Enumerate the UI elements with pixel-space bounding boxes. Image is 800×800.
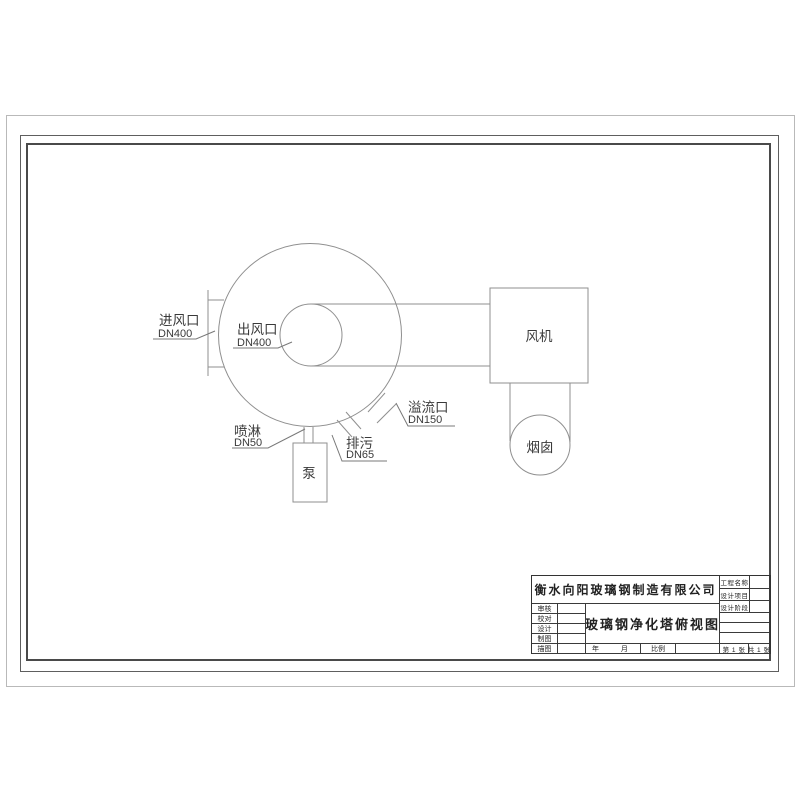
pump-label: 泵 <box>302 466 316 481</box>
design-stage-value <box>750 601 770 613</box>
sign-label-jiaodui: 校对 <box>532 614 558 624</box>
project-name-label: 工程名称 <box>720 576 750 589</box>
sheet-current: 第 1 张 <box>720 644 749 654</box>
sign-label-sheji: 设计 <box>532 624 558 634</box>
sign-value-jiaodui <box>558 614 586 624</box>
overflow-stub-line-1 <box>368 393 385 412</box>
design-item-label: 设计项目 <box>720 589 750 601</box>
right-empty-row-1 <box>720 613 770 623</box>
design-stage-label: 设计阶段 <box>720 601 750 613</box>
outlet-port-circle <box>280 304 342 366</box>
sign-value-shenhe <box>558 604 586 614</box>
scale-value <box>676 644 720 654</box>
sign-value-zhitu <box>558 634 586 644</box>
inlet-label: 进风口 <box>159 313 200 328</box>
spray-dn-label: DN50 <box>234 437 262 449</box>
date-label: 年 月 <box>586 644 641 654</box>
sign-value-sheji <box>558 624 586 634</box>
inlet-dn-label: DN400 <box>158 328 192 340</box>
fan-label: 风机 <box>526 329 554 344</box>
sign-label-shenhe: 审核 <box>532 604 558 614</box>
sign-label-miaotu: 描图 <box>532 644 558 654</box>
overflow-dn-label: DN150 <box>408 414 442 426</box>
scale-label: 比例 <box>641 644 676 654</box>
sign-value-miaotu <box>558 644 586 654</box>
screenshot-root: { "drawing": { "labels": { "inlet": { "n… <box>0 0 800 800</box>
design-item-value <box>750 589 770 601</box>
outlet-dn-label: DN400 <box>237 337 271 349</box>
drain-stub-line-2 <box>346 412 361 429</box>
drain-stub-line-1 <box>337 420 352 437</box>
title-block: 衡水向阳玻璃钢制造有限公司 审核 校对 设计 制图 描图 玻璃钢净化塔俯视图 年… <box>531 575 771 654</box>
purification-tower-plan-view: 进风口 DN400 出风口 DN400 喷淋 DN50 排污 DN65 溢流口 … <box>0 0 800 800</box>
drawing-title: 玻璃钢净化塔俯视图 <box>586 604 720 644</box>
company-name: 衡水向阳玻璃钢制造有限公司 <box>532 576 720 604</box>
project-name-value <box>750 576 770 589</box>
overflow-stub-line-2 <box>377 404 396 423</box>
right-empty-row-3 <box>720 633 770 644</box>
sign-label-zhitu: 制图 <box>532 634 558 644</box>
right-empty-row-2 <box>720 623 770 633</box>
drain-dn-label: DN65 <box>346 449 374 461</box>
overflow-label: 溢流口 <box>408 400 449 415</box>
chimney-label: 烟囱 <box>527 440 554 455</box>
outlet-label: 出风口 <box>237 322 278 337</box>
sheet-total: 共 1 张 <box>749 644 770 654</box>
